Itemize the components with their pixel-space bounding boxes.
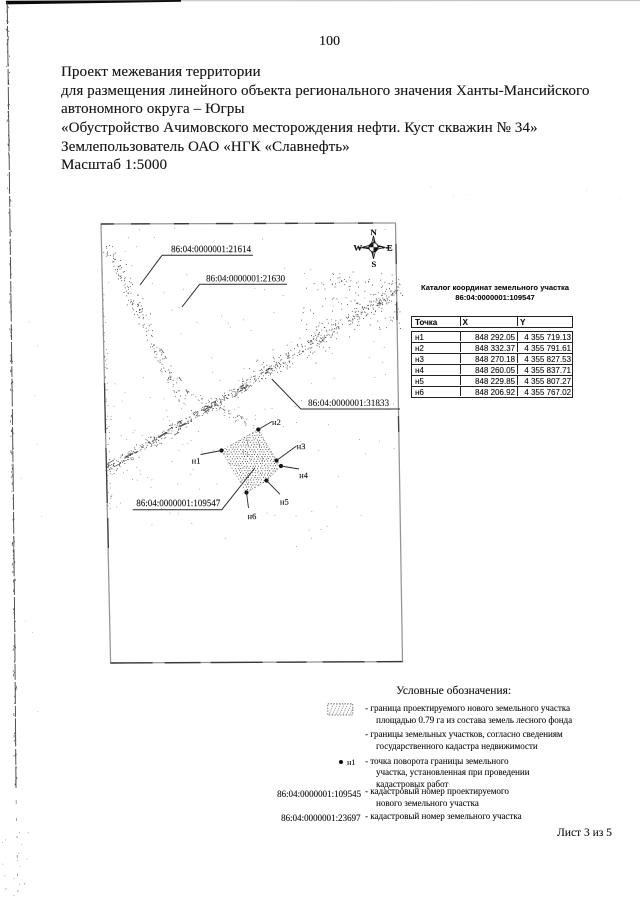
svg-text:86:04:0000001:31833: 86:04:0000001:31833	[308, 398, 390, 408]
svg-text:S: S	[371, 259, 376, 269]
svg-text:н3: н3	[297, 441, 306, 451]
svg-text:н2: н2	[272, 417, 281, 427]
svg-text:н5: н5	[280, 497, 289, 507]
svg-text:н6: н6	[247, 511, 256, 521]
svg-text:н1: н1	[192, 456, 201, 466]
svg-text:N: N	[370, 227, 377, 237]
svg-text:н4: н4	[299, 470, 309, 480]
svg-text:86:04:0000001:21630: 86:04:0000001:21630	[206, 273, 286, 283]
svg-text:86:04:0000001:21614: 86:04:0000001:21614	[171, 244, 252, 254]
svg-text:86:04:0000001:109547: 86:04:0000001:109547	[136, 498, 221, 508]
